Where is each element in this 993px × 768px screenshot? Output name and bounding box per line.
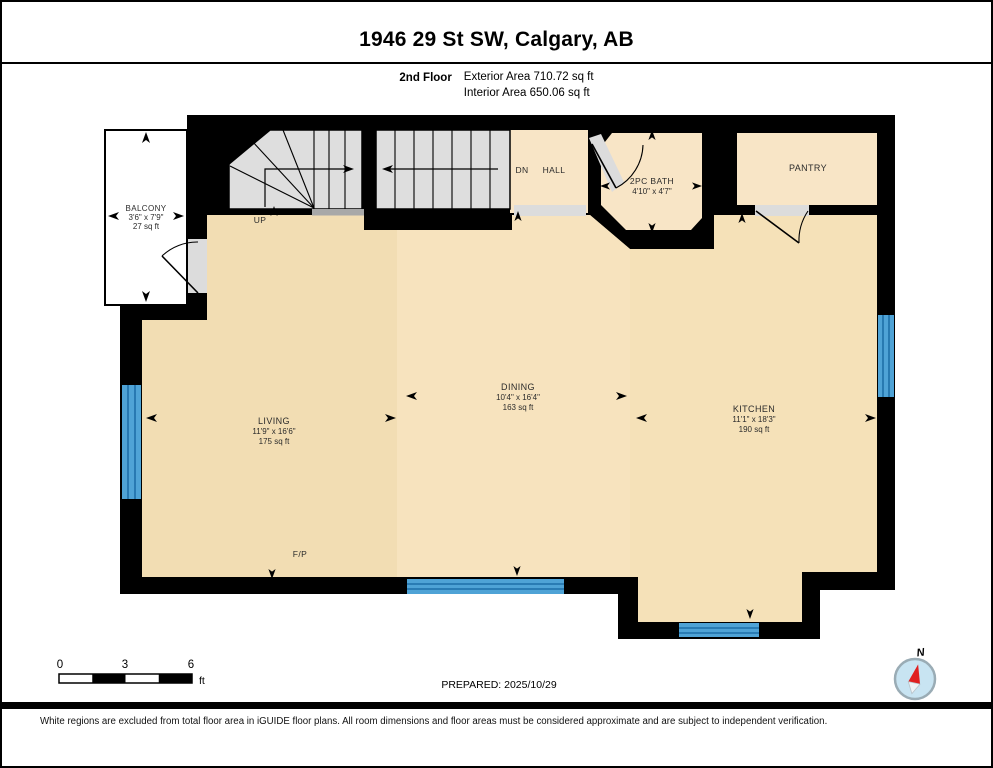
room-label-living: LIVING 11'9" x 16'6" 175 sq ft — [252, 416, 295, 446]
stairs-down — [376, 130, 510, 209]
footer-divider — [2, 702, 993, 709]
window-living-left — [122, 385, 141, 499]
compass-north-label: N — [916, 646, 927, 659]
prepared-date: PREPARED: 2025/10/29 — [441, 679, 557, 691]
floorplan-canvas: BALCONY 3'6" x 7'9" 27 sq ft LIVING 11'9… — [2, 2, 993, 768]
bath-dims: 4'10" x 4'7" — [632, 187, 672, 196]
compass-icon: N — [895, 646, 935, 699]
living-dims: 11'9" x 16'6" — [252, 427, 295, 436]
hall-name: HALL — [543, 165, 566, 175]
dining-area: 163 sq ft — [503, 403, 534, 412]
opening-hall-dining — [514, 205, 586, 216]
window-kitchen-bay — [679, 623, 759, 637]
scale-tick-3: 3 — [122, 659, 128, 671]
dining-dims: 10'4" x 16'4" — [496, 393, 540, 402]
living-name: LIVING — [258, 416, 290, 426]
room-label-kitchen: KITCHEN 11'1" x 18'3" 190 sq ft — [732, 404, 775, 434]
pantry-name: PANTRY — [789, 163, 827, 173]
dn-label: DN — [515, 165, 528, 175]
kitchen-area: 190 sq ft — [739, 425, 770, 434]
scale-bar: 0 3 6 ft — [57, 659, 205, 687]
up-label: UP — [254, 215, 267, 225]
living-area: 175 sq ft — [259, 437, 290, 446]
scale-tick-6: 6 — [188, 659, 194, 671]
fireplace-label: F/P — [293, 549, 307, 559]
scale-unit: ft — [199, 675, 205, 687]
bath-name: 2PC BATH — [630, 176, 674, 186]
floorplan-page: 1946 29 St SW, Calgary, AB 2nd Floor Ext… — [0, 0, 993, 768]
balcony-area: 27 sq ft — [133, 222, 160, 231]
window-kitchen-right — [878, 315, 894, 397]
opening-pantry-door — [755, 205, 809, 216]
window-dining-bottom — [407, 579, 564, 594]
disclaimer-text: White regions are excluded from total fl… — [40, 716, 827, 727]
balcony-dims: 3'6" x 7'9" — [129, 213, 164, 222]
scale-tick-0: 0 — [57, 659, 63, 671]
balcony-name: BALCONY — [125, 204, 166, 213]
kitchen-dims: 11'1" x 18'3" — [732, 415, 775, 424]
dining-name: DINING — [501, 382, 535, 392]
kitchen-name: KITCHEN — [733, 404, 775, 414]
